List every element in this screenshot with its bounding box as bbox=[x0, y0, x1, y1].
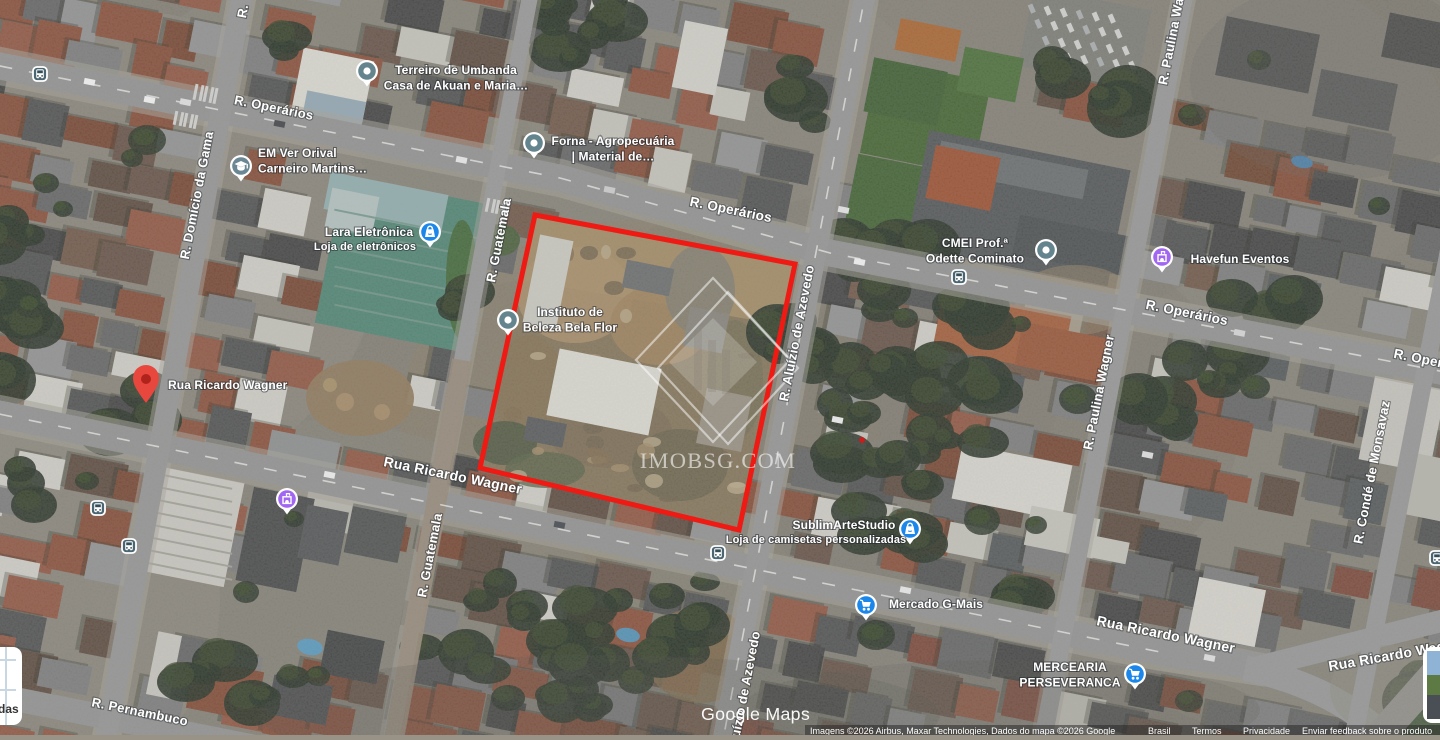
svg-text:Havefun Eventos: Havefun Eventos bbox=[1191, 252, 1290, 266]
svg-text:Forna - Agropecuária: Forna - Agropecuária bbox=[552, 134, 675, 148]
svg-text:IMOBSG.COM: IMOBSG.COM bbox=[640, 448, 796, 473]
svg-text:| Material de…: | Material de… bbox=[572, 150, 655, 164]
svg-text:Imagens ©2026 Airbus, Maxar Te: Imagens ©2026 Airbus, Maxar Technologies… bbox=[810, 726, 1115, 735]
svg-text:Terreiro de Umbanda: Terreiro de Umbanda bbox=[395, 63, 517, 77]
svg-text:Beleza Bela Flor: Beleza Bela Flor bbox=[523, 321, 618, 335]
svg-text:Rua Ricardo Wagner: Rua Ricardo Wagner bbox=[168, 378, 288, 392]
svg-text:Termos: Termos bbox=[1192, 726, 1222, 735]
svg-text:Casa de Akuan e Maria…: Casa de Akuan e Maria… bbox=[384, 79, 528, 93]
svg-text:PERSEVERANCA: PERSEVERANCA bbox=[1019, 676, 1120, 690]
svg-text:Brasil: Brasil bbox=[1148, 726, 1171, 735]
svg-text:Instituto de: Instituto de bbox=[537, 305, 603, 319]
svg-text:MERCEARIA: MERCEARIA bbox=[1033, 660, 1107, 674]
svg-text:SublimArteStudio: SublimArteStudio bbox=[793, 518, 896, 532]
svg-text:CMEI Prof.ª: CMEI Prof.ª bbox=[942, 236, 1009, 250]
svg-text:Odette Cominato: Odette Cominato bbox=[926, 252, 1024, 266]
svg-text:R.: R. bbox=[234, 3, 251, 19]
svg-text:Loja de camisetas personalizad: Loja de camisetas personalizadas bbox=[726, 534, 907, 546]
svg-text:Mercado G-Mais: Mercado G-Mais bbox=[889, 597, 983, 611]
svg-text:Lara Eletrônica: Lara Eletrônica bbox=[325, 225, 413, 239]
svg-text:das: das bbox=[0, 702, 19, 716]
svg-text:Enviar feedback sobre o produt: Enviar feedback sobre o produto bbox=[1302, 726, 1432, 735]
svg-text:Carneiro Martins…: Carneiro Martins… bbox=[258, 162, 367, 176]
svg-text:Privacidade: Privacidade bbox=[1243, 726, 1290, 735]
svg-text:Loja de eletrônicos: Loja de eletrônicos bbox=[314, 241, 416, 253]
svg-text:Google Maps: Google Maps bbox=[701, 704, 810, 724]
svg-text:EM Ver Orival: EM Ver Orival bbox=[258, 146, 337, 160]
